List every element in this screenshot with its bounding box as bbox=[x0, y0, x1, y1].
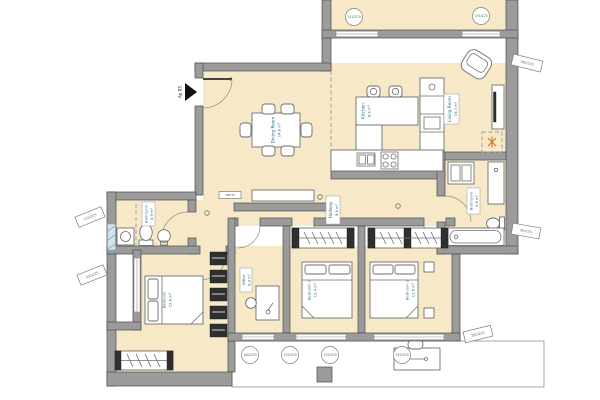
svg-text:135/225: 135/225 bbox=[395, 353, 409, 357]
room-label-kitchen-name: Kitchen bbox=[361, 103, 366, 119]
window-master-left bbox=[134, 258, 140, 312]
room-label-kitchen-area: 8.6 m² bbox=[368, 104, 372, 117]
window-tag-bottom-4: 135/225 bbox=[394, 347, 411, 364]
tv-board bbox=[492, 85, 504, 129]
room-label-bedroom-2-area: 13.6 m² bbox=[412, 282, 416, 297]
floor-plan: Ap 05 Dining Room 14.6 m² 180/70 bbox=[0, 0, 600, 400]
window-tag-top-2: 135/225 bbox=[473, 8, 490, 25]
window-top-2 bbox=[462, 31, 500, 37]
bathtub bbox=[447, 228, 504, 246]
dining-chair bbox=[240, 123, 251, 137]
room-label-office-area: 4.9 m² bbox=[248, 273, 252, 286]
room-label-bathroom-2-area: 5.6 m² bbox=[475, 194, 479, 207]
shower bbox=[488, 162, 504, 204]
svg-text:180/70: 180/70 bbox=[225, 193, 235, 197]
bed bbox=[145, 276, 203, 324]
office-door-swing bbox=[238, 226, 260, 248]
window-tag-bottom-1: 160/225 bbox=[242, 347, 259, 364]
room-label-hallway-name: Hallway bbox=[328, 201, 333, 218]
dining-chair bbox=[281, 146, 294, 156]
window-top-1 bbox=[336, 31, 378, 37]
wardrobe bbox=[115, 351, 173, 370]
svg-text:135/225: 135/225 bbox=[474, 14, 488, 18]
dining-chair bbox=[262, 146, 275, 156]
dining-chair bbox=[262, 104, 275, 114]
bar-stool bbox=[367, 86, 380, 97]
room-label-hallway-area: 9.8 m² bbox=[335, 203, 339, 216]
vanity-cabinet bbox=[448, 162, 474, 184]
svg-text:160/225: 160/225 bbox=[243, 353, 257, 357]
room-label-bathroom-1-name: Bathroom bbox=[145, 205, 149, 224]
toilet bbox=[139, 225, 153, 246]
window-bathroom-1-glassblock bbox=[108, 224, 116, 250]
entrance-arrow-icon bbox=[185, 83, 197, 101]
room-label-living-area: 19.3 m² bbox=[454, 101, 458, 116]
svg-text:135/225: 135/225 bbox=[323, 353, 337, 357]
built-in-closet bbox=[210, 252, 227, 337]
window-tag-bottom-2: 135/225 bbox=[282, 347, 299, 364]
room-label-master-name: Bedroom bbox=[163, 291, 167, 308]
wardrobe bbox=[292, 228, 354, 248]
desk-chair bbox=[246, 298, 257, 309]
room-label-bedroom-2-name: Bedroom 2 bbox=[406, 280, 410, 300]
entry-door-knob-icon bbox=[229, 78, 232, 81]
window-tag-left-1: 110/225 bbox=[75, 207, 105, 228]
unit-label: Ap 05 bbox=[178, 86, 183, 99]
window-tag-right-3: 180/225 bbox=[463, 325, 493, 342]
room-label-bathroom-2-name: Bathroom bbox=[470, 192, 474, 211]
nightstand bbox=[424, 308, 434, 318]
kitchen-base-counter bbox=[331, 150, 443, 171]
room-label-office-name: Office bbox=[242, 274, 246, 285]
dining-chair bbox=[301, 123, 312, 137]
svg-text:135/225: 135/225 bbox=[283, 353, 297, 357]
window-tag-top-1: 141/225 bbox=[346, 9, 363, 26]
wardrobe bbox=[368, 228, 448, 248]
room-label-bedroom-1-area: 12.4 m² bbox=[314, 282, 318, 297]
room-label-bathroom-1-area: 4.9 m² bbox=[150, 207, 154, 220]
kitchen-tall-units bbox=[420, 78, 444, 152]
svg-text:141/225: 141/225 bbox=[347, 15, 361, 19]
window-tag-left-2: 100/225 bbox=[77, 265, 107, 286]
window-office bbox=[242, 334, 274, 340]
beam-tag: 180/70 bbox=[219, 192, 241, 199]
room-label-living-name: Living Room bbox=[447, 96, 452, 122]
terrace-column bbox=[317, 367, 332, 382]
window-bedroom-1 bbox=[296, 334, 346, 340]
window-bedroom-2 bbox=[374, 334, 444, 340]
room-label-master-area: 15.8 m² bbox=[169, 292, 173, 307]
terrace bbox=[232, 340, 544, 387]
dining-chair bbox=[281, 104, 294, 114]
window-tag-bottom-3: 135/225 bbox=[322, 347, 339, 364]
room-label-bedroom-1-name: Bedroom 1 bbox=[308, 280, 312, 300]
washbasin bbox=[117, 228, 134, 245]
nightstand bbox=[424, 262, 434, 272]
sideboard bbox=[252, 190, 314, 201]
room-label-dining-name: Dining Room bbox=[271, 117, 276, 144]
desk bbox=[256, 286, 279, 320]
bar-stool bbox=[389, 86, 402, 97]
room-label-dining-area: 14.6 m² bbox=[278, 122, 282, 137]
